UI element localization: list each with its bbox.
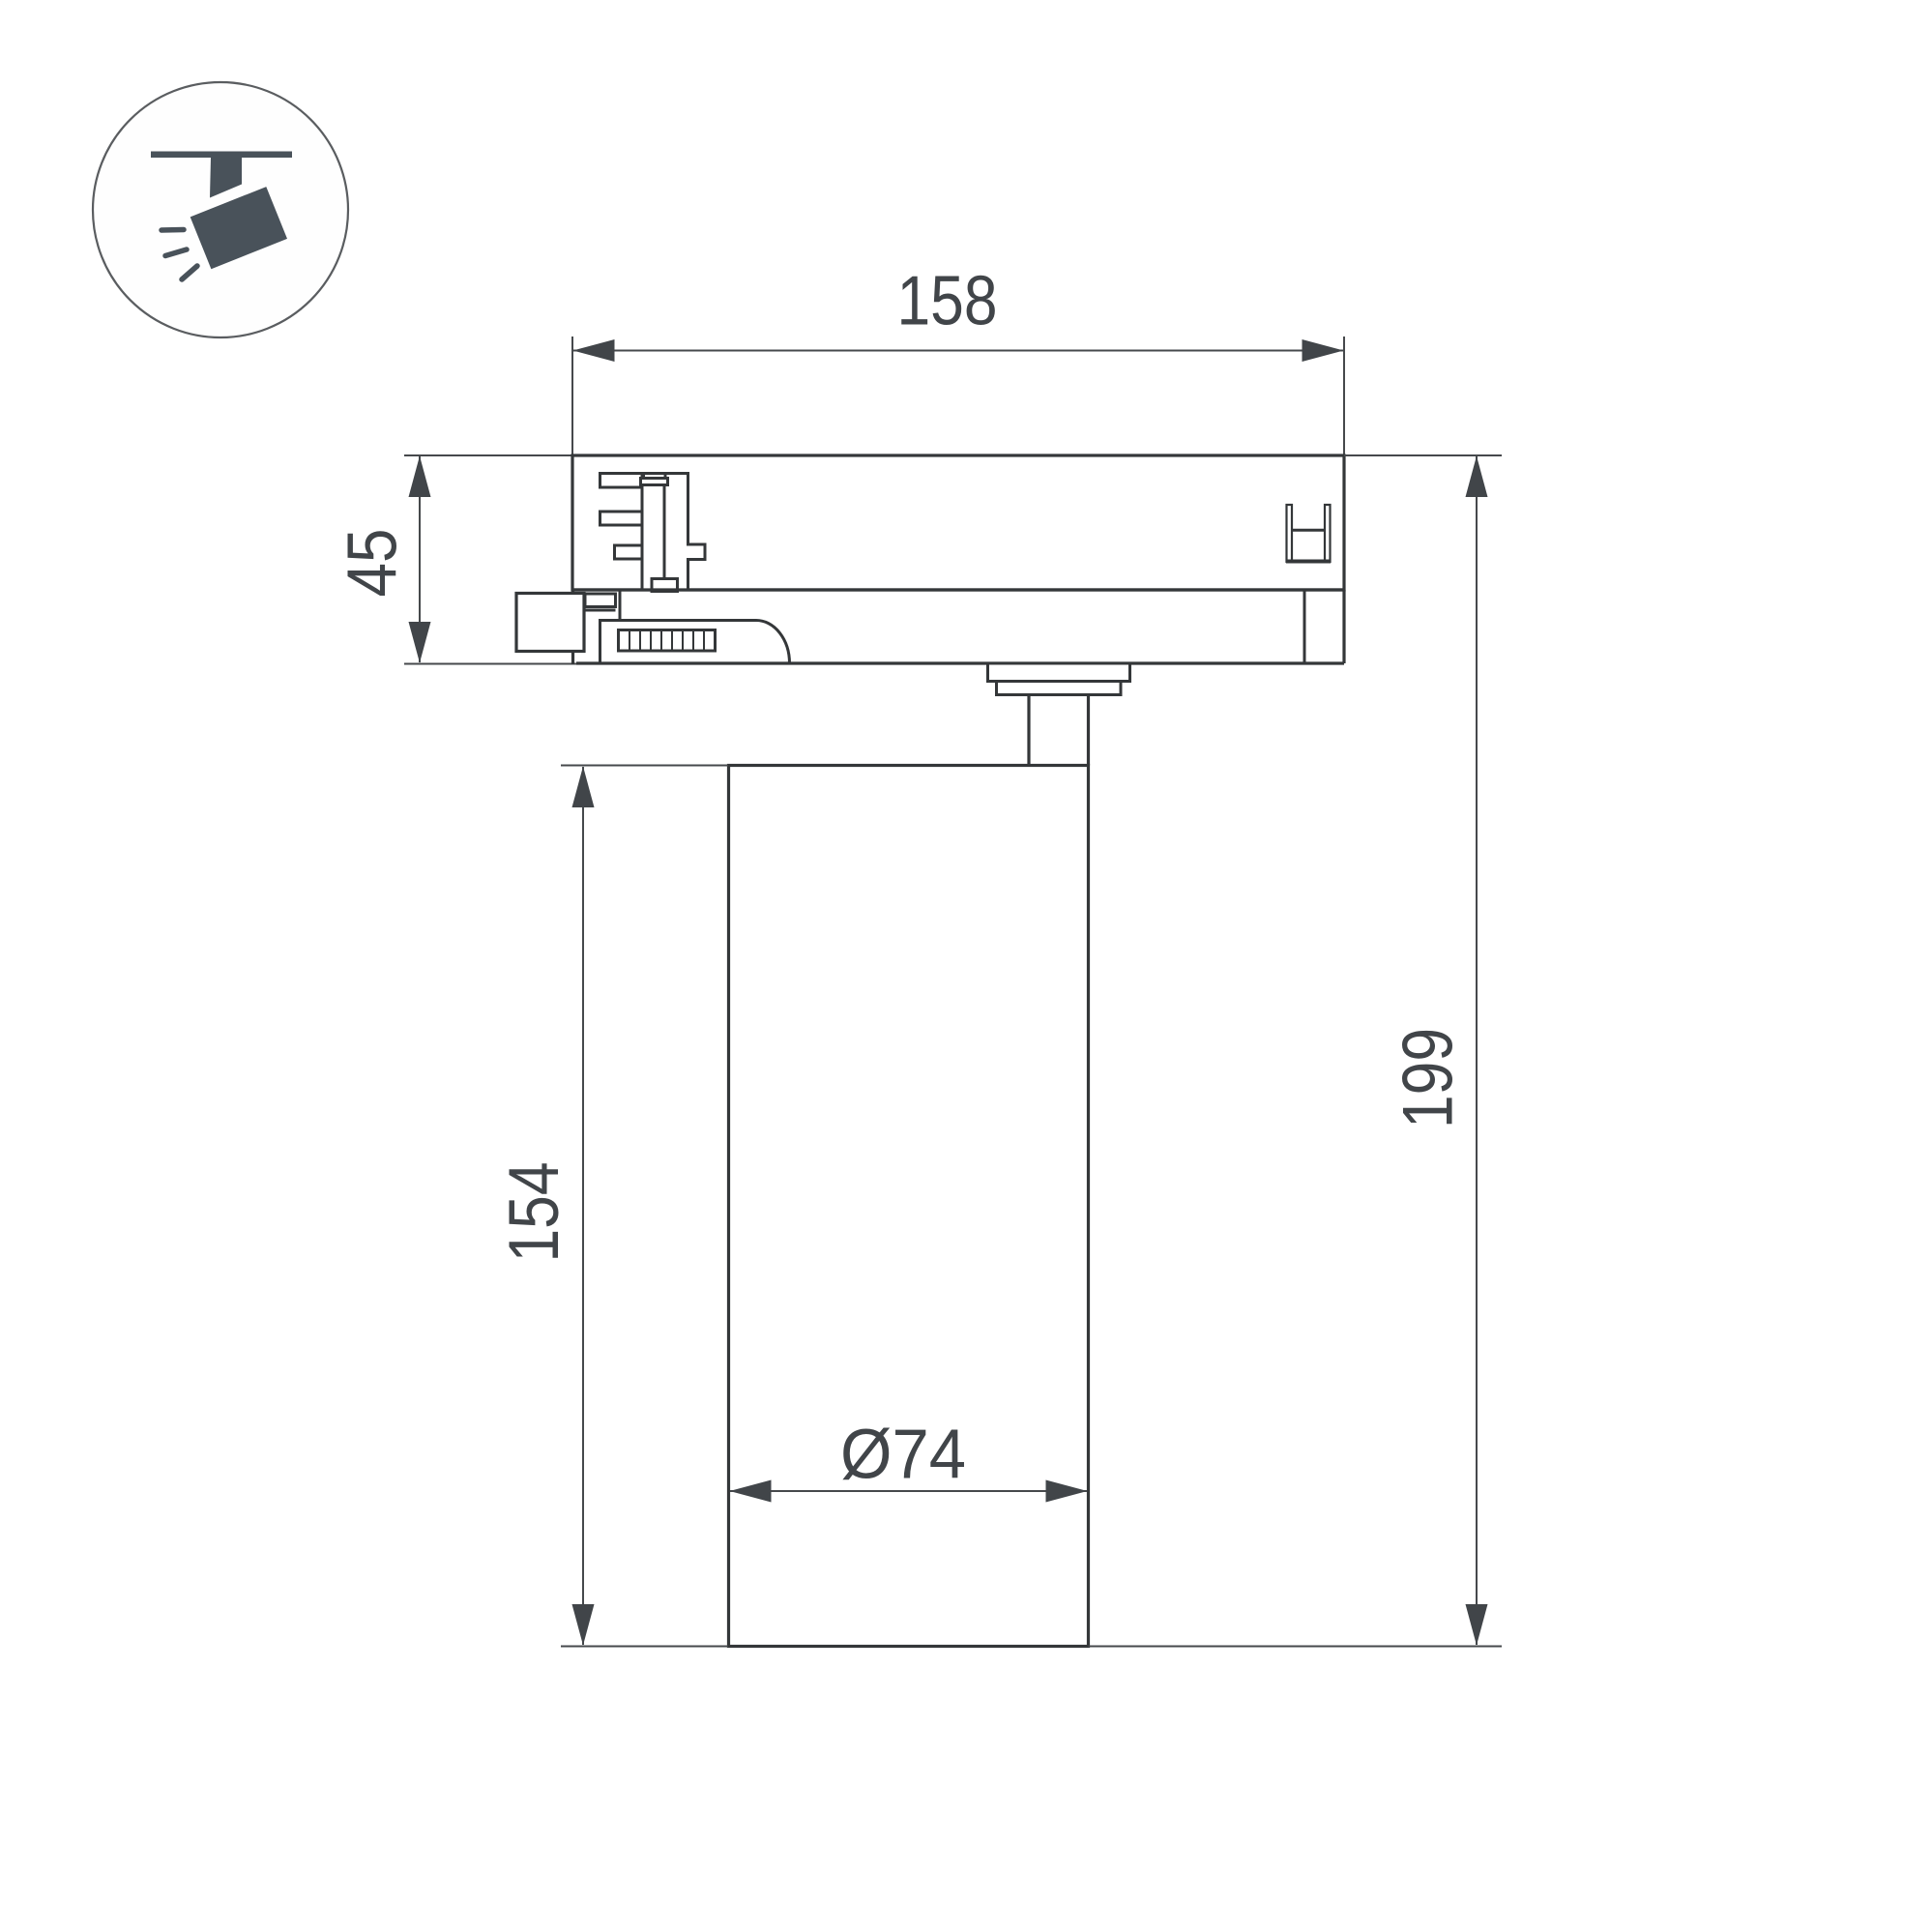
svg-text:199: 199 <box>1390 1028 1468 1128</box>
svg-text:154: 154 <box>495 1162 573 1263</box>
svg-text:158: 158 <box>897 263 998 340</box>
svg-text:Ø74: Ø74 <box>840 1417 966 1494</box>
svg-text:45: 45 <box>335 529 412 598</box>
